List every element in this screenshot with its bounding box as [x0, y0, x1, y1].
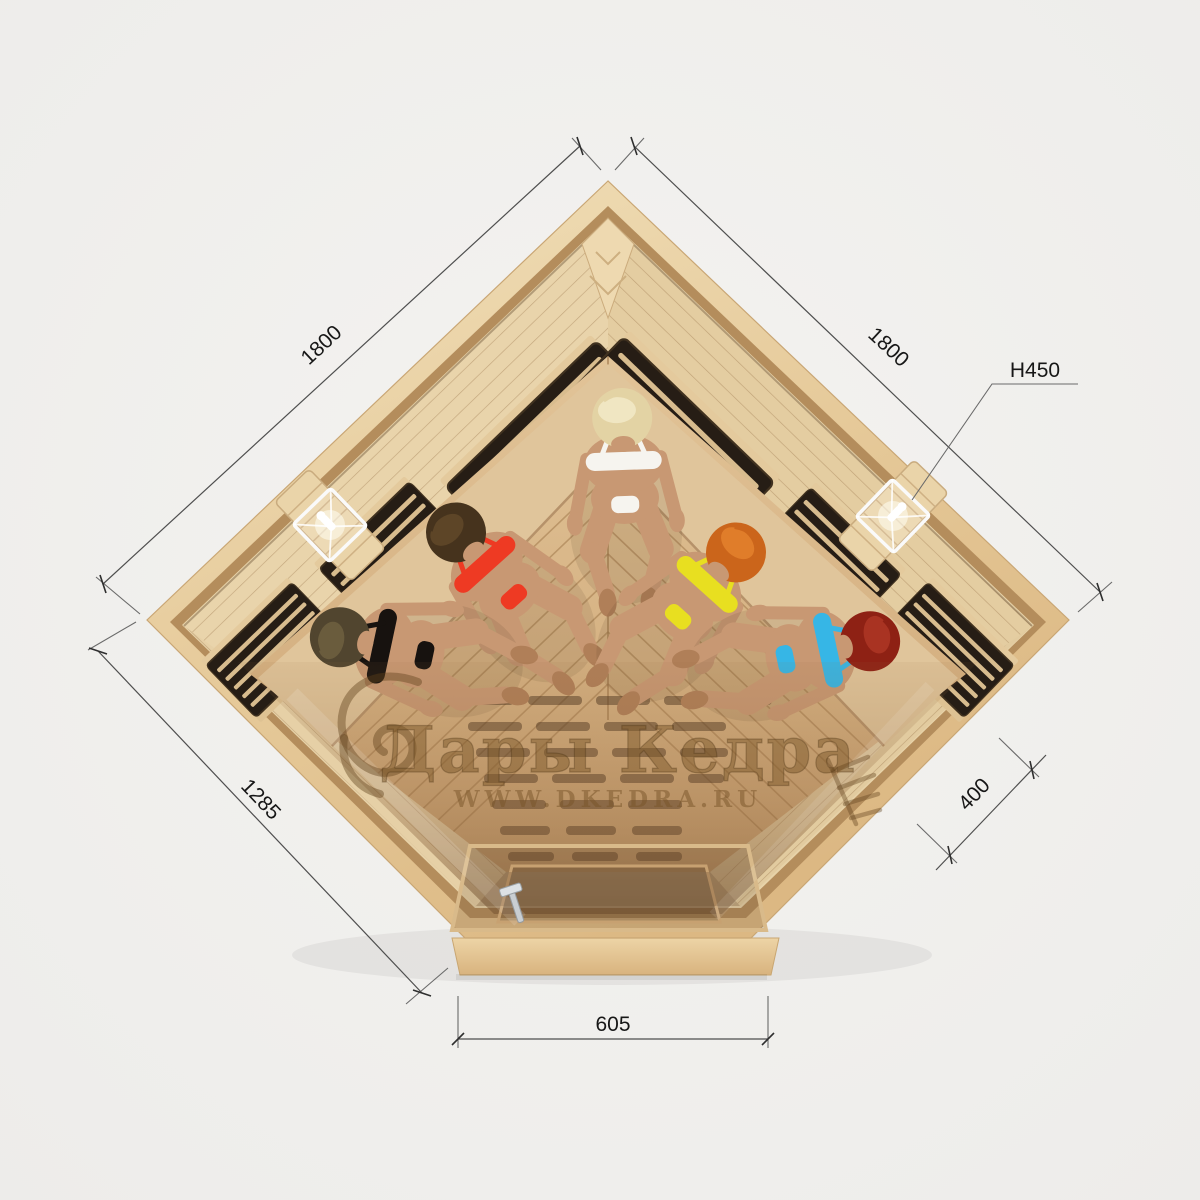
dimension-label-height: H450	[1010, 359, 1060, 382]
dimension-label-front-door-width: 605	[595, 1013, 630, 1036]
sauna-top-view-render: Дары Кедра WWW.DKEDRA.RU 1800 1800 H450	[0, 0, 1200, 1200]
watermark-title: Дары Кедра	[379, 713, 856, 788]
base-platform	[452, 938, 779, 980]
watermark-url: WWW.DKEDRA.RU	[453, 786, 762, 813]
screenshot-canvas: Дары Кедра WWW.DKEDRA.RU 1800 1800 H450	[0, 0, 1200, 1200]
